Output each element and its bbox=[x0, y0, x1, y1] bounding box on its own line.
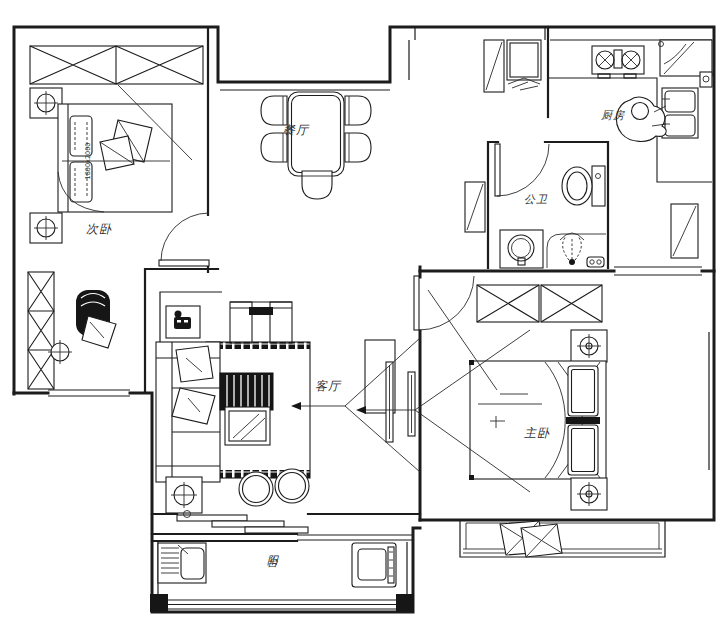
corner-lamp-icon bbox=[166, 477, 202, 513]
chair-icon bbox=[261, 96, 287, 125]
bathroom-label: 公卫 bbox=[524, 193, 548, 206]
balcony-label: 阳台 bbox=[266, 555, 278, 568]
bed-icon bbox=[469, 360, 606, 480]
wardrobe-icon bbox=[30, 46, 203, 84]
plant-icon bbox=[500, 521, 562, 557]
dining-label: 餐厅 bbox=[283, 123, 310, 137]
chair-icon bbox=[302, 171, 332, 199]
master-bedroom-door-icon bbox=[414, 276, 474, 330]
second-bedroom-door-icon bbox=[159, 213, 209, 266]
cabinet-icon bbox=[507, 40, 541, 90]
sofa-icon bbox=[156, 342, 220, 482]
dining-room bbox=[261, 92, 371, 199]
chair-icon bbox=[261, 133, 287, 162]
corner-cabinet-icon bbox=[659, 40, 713, 87]
balcony-post bbox=[396, 594, 414, 612]
tall-wardrobe-icon bbox=[28, 272, 72, 389]
bay-window bbox=[460, 520, 665, 557]
washing-machine-icon bbox=[352, 543, 396, 587]
laundry-sink-icon bbox=[158, 543, 206, 583]
tv-cabinet-icon bbox=[365, 340, 415, 442]
bed-dimension-label: 1800x2000 bbox=[84, 143, 92, 180]
chair-icon bbox=[345, 133, 371, 162]
kitchen bbox=[548, 40, 712, 258]
balcony-post bbox=[150, 594, 168, 612]
sliding-door-icon bbox=[177, 515, 308, 533]
hall-cabinet-icon bbox=[465, 182, 485, 232]
nightstand-lamp-icon bbox=[571, 478, 607, 510]
floor-plan: 餐厅 次卧 公卫 厨房 客厅 主卧 阳台 1800x2000 bbox=[0, 0, 728, 624]
washbasin-icon bbox=[500, 230, 543, 268]
kitchen-label: 厨房 bbox=[601, 109, 625, 122]
nightstand-lamp-icon bbox=[571, 330, 607, 362]
wardrobe-icon bbox=[477, 285, 602, 322]
shoe-cabinet-icon bbox=[484, 40, 504, 92]
fridge-icon bbox=[671, 204, 698, 258]
tv-niche-icon bbox=[230, 302, 292, 343]
kitchen-sink-icon bbox=[662, 88, 698, 138]
entry bbox=[484, 40, 541, 92]
bed-icon bbox=[58, 104, 172, 212]
desk-chair-icon bbox=[76, 290, 116, 348]
coffee-table-icon bbox=[220, 373, 273, 445]
living-room bbox=[156, 302, 415, 533]
chair-icon bbox=[345, 96, 371, 125]
stove-icon bbox=[592, 46, 644, 78]
bathroom-door-icon bbox=[495, 144, 549, 196]
living-label: 客厅 bbox=[315, 379, 342, 393]
master-bedroom bbox=[469, 285, 607, 510]
toilet-icon bbox=[562, 166, 605, 206]
second-bedroom-label: 次卧 bbox=[86, 222, 112, 236]
nightstand-lamp-icon bbox=[30, 213, 62, 243]
equipment-box-icon bbox=[166, 306, 200, 338]
nightstand-lamp-icon bbox=[30, 88, 62, 118]
shower-icon bbox=[560, 233, 604, 267]
bathroom bbox=[500, 166, 606, 268]
master-bedroom-label: 主卧 bbox=[524, 426, 550, 440]
